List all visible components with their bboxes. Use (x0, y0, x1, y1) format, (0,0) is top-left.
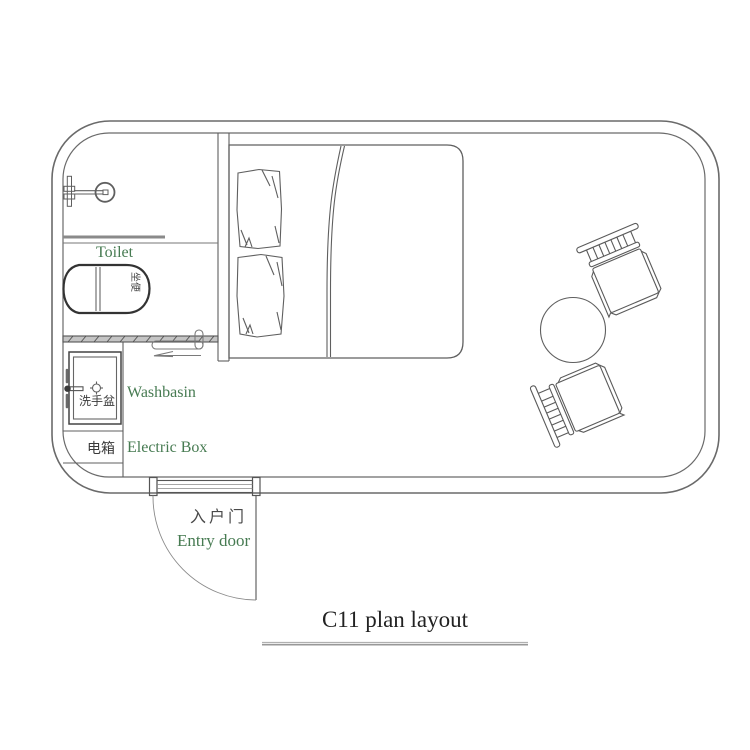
entry-door-label: Entry door (177, 532, 250, 549)
bed (229, 145, 463, 358)
round-table (541, 298, 606, 363)
shower-partition (63, 237, 218, 243)
room-inner-wall (63, 133, 705, 477)
washbasin-fixture (69, 352, 121, 424)
plan-drawing (0, 0, 750, 750)
electric-box-label-zh: 电箱 (87, 443, 115, 457)
title-underline (262, 643, 528, 645)
floor-plan: Toilet 坐便 Washbasin 洗手盆 Electric Box 电箱 … (0, 0, 750, 750)
pillow (237, 170, 282, 249)
washbasin-label: Washbasin (127, 385, 196, 401)
electric-box-label: Electric Box (127, 440, 207, 456)
chair-1 (576, 223, 667, 319)
bathroom-partition-wall (218, 133, 229, 361)
washbasin-label-zh: 洗手盆 (79, 395, 115, 407)
toilet-label: Toilet (96, 245, 133, 261)
sliding-door (152, 330, 203, 357)
room-outer-wall (52, 121, 719, 493)
entry-door-label-zh: 入户门 (190, 510, 247, 526)
chair-2 (530, 357, 626, 448)
toilet-label-zh: 坐便 (129, 270, 139, 294)
plan-title: C11 plan layout (262, 608, 528, 631)
shower-head-icon (64, 176, 115, 206)
pillow (237, 255, 284, 338)
blanket-fold (327, 146, 345, 357)
